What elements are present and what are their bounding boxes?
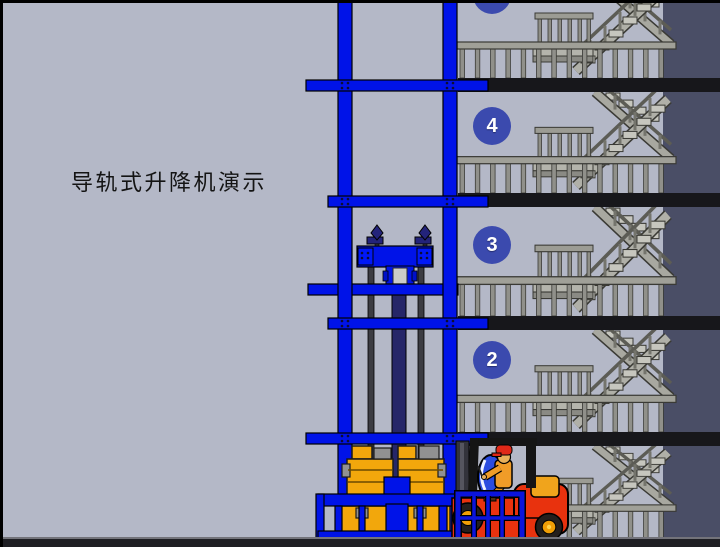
floor-number-badge: 2 xyxy=(473,341,511,379)
floor-number-badge: 3 xyxy=(473,226,511,264)
demo-title: 导轨式升降机演示 xyxy=(71,165,267,197)
frame-border-left xyxy=(0,0,3,547)
lift-carriage-head xyxy=(308,225,458,295)
chain-anchor-left xyxy=(367,225,383,247)
floor-number-badge: 4 xyxy=(473,107,511,145)
frame-border-top xyxy=(0,0,720,3)
carriage-guide-beam xyxy=(308,284,458,295)
forklift xyxy=(440,430,585,547)
driver-cap xyxy=(492,445,512,457)
chain-anchor-right xyxy=(415,225,431,247)
lift-demo-canvas: 5432 导轨式升降机演示 xyxy=(0,0,720,547)
ground-strip xyxy=(0,537,720,547)
